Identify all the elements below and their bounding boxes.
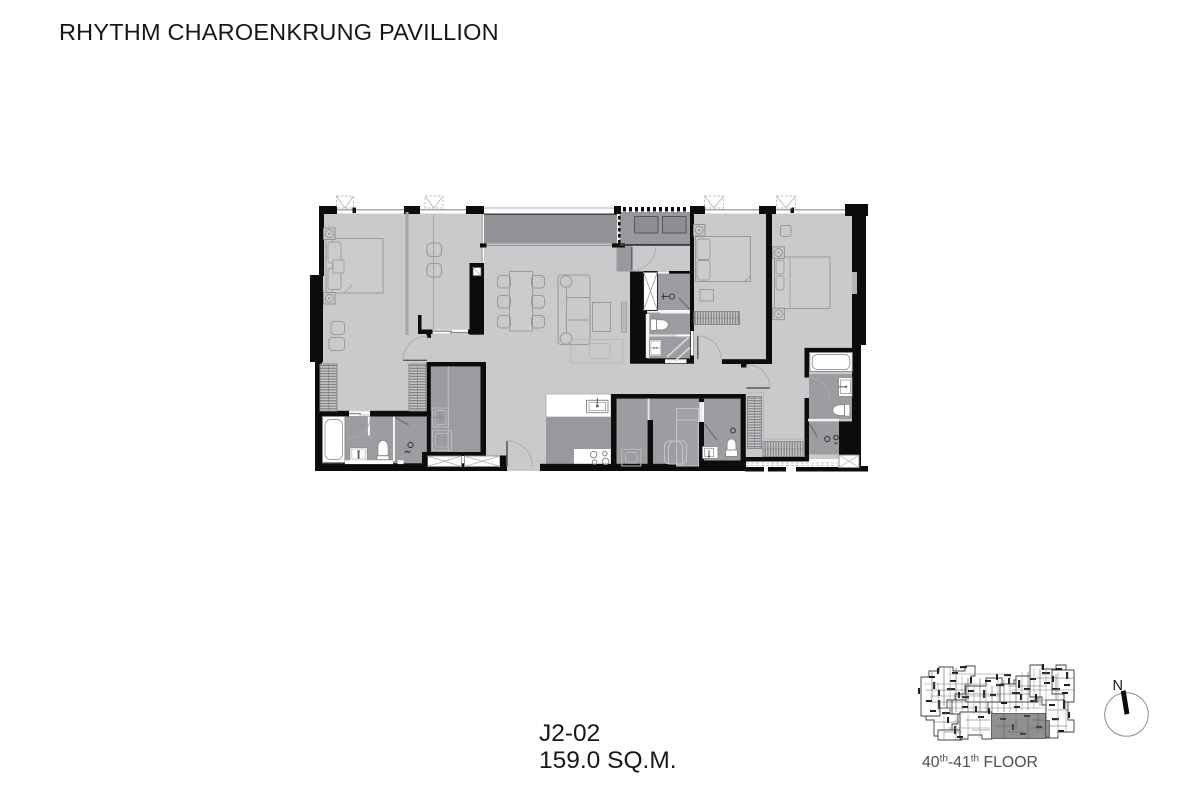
svg-text:159.0 SQ.M.: 159.0 SQ.M. [539, 747, 677, 774]
svg-text:RHYTHM CHAROENKRUNG PAVILLION: RHYTHM CHAROENKRUNG PAVILLION [59, 19, 499, 45]
svg-text:J2-02: J2-02 [539, 720, 600, 747]
svg-text:N: N [1113, 678, 1123, 694]
svg-text:40th-41th FLOOR: 40th-41th FLOOR [922, 754, 1038, 772]
